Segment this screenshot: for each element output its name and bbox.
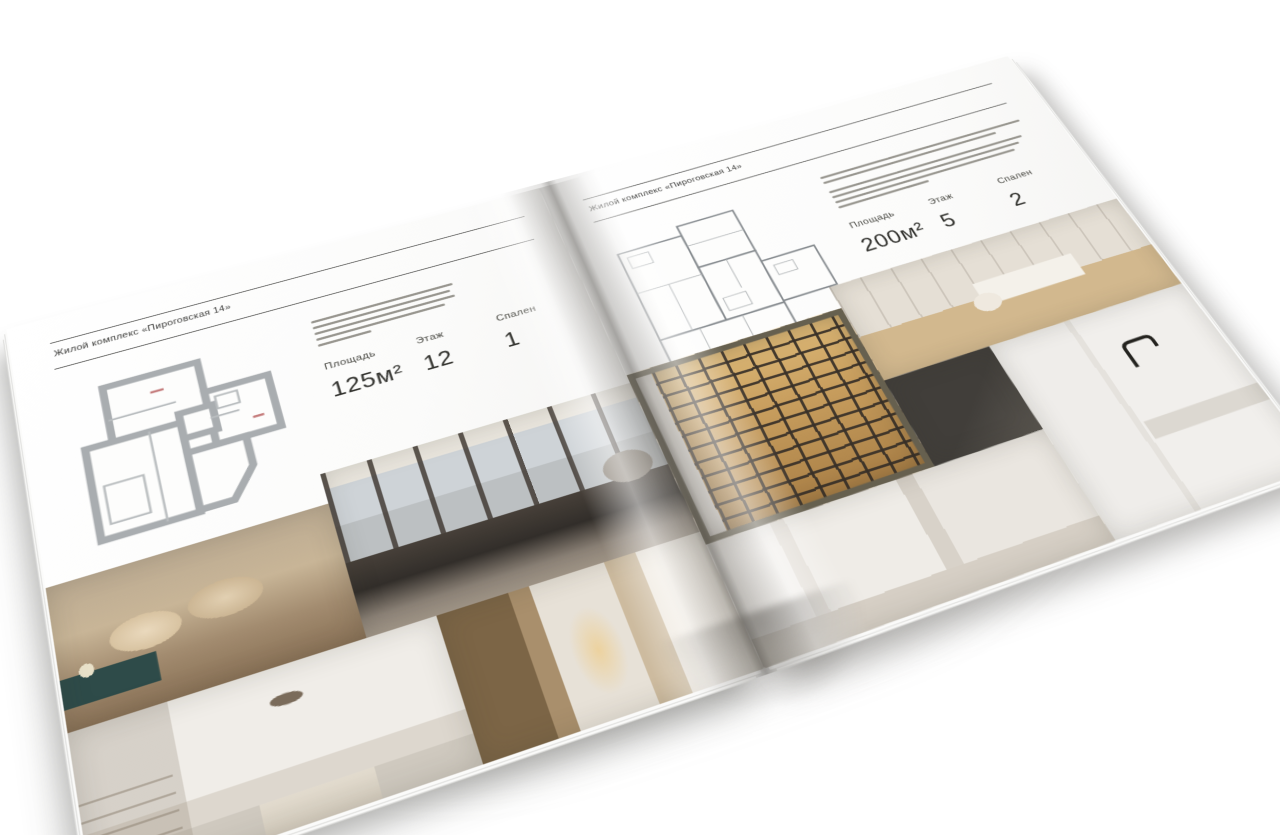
stat-area: Площадь 125м²	[323, 343, 407, 402]
stat-bedrooms: Спален 2	[995, 163, 1069, 211]
photo-of-open-brochure: Жилой комплекс «Пироговская 14»	[0, 0, 1280, 835]
stat-floor: Этаж 5	[926, 184, 1000, 233]
stat-bedrooms: Спален 1	[495, 299, 569, 353]
black-faucet-icon	[1117, 330, 1174, 368]
text-line	[311, 283, 453, 324]
stat-floor: Этаж 12	[415, 321, 489, 376]
stat-area: Площадь 200м²	[848, 204, 931, 256]
